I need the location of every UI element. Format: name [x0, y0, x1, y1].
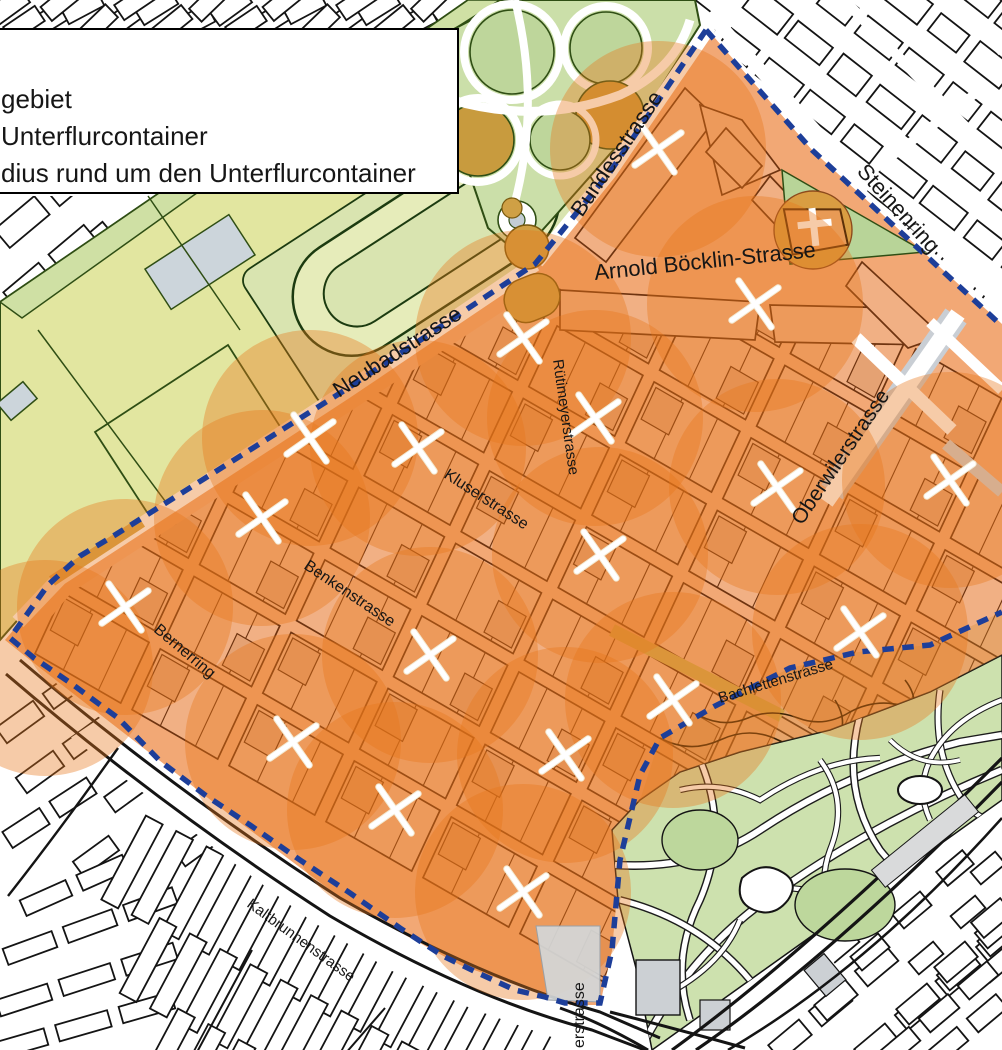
svg-text:gebiet: gebiet: [1, 84, 73, 114]
svg-text:Unterflurcontainer: Unterflurcontainer: [1, 121, 208, 151]
svg-text:erstrasse: erstrasse: [571, 982, 588, 1048]
svg-text:dius rund um den Unterflurcont: dius rund um den Unterflurcontainer: [1, 158, 416, 188]
